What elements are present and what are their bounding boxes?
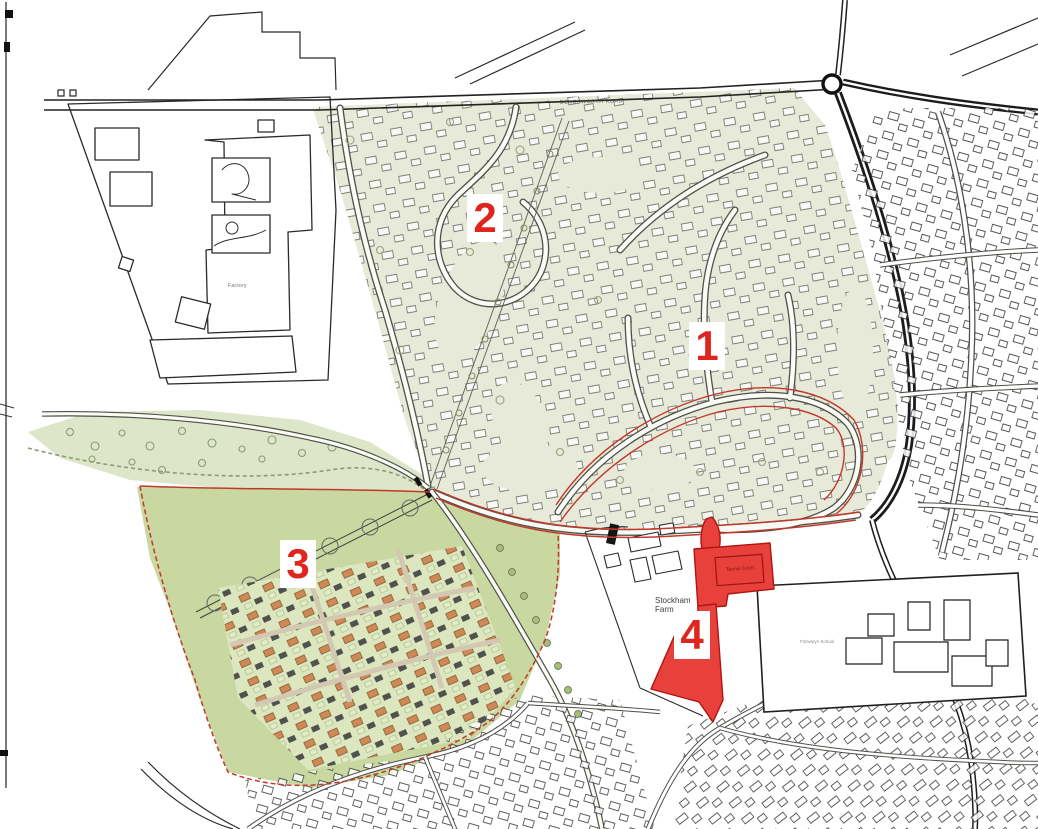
map-canvas [0, 0, 1038, 829]
school-parcel [757, 573, 1026, 712]
site-plan-map: 1 2 3 4 DENCHWORTH ROAD Factory Stockham… [0, 0, 1038, 829]
